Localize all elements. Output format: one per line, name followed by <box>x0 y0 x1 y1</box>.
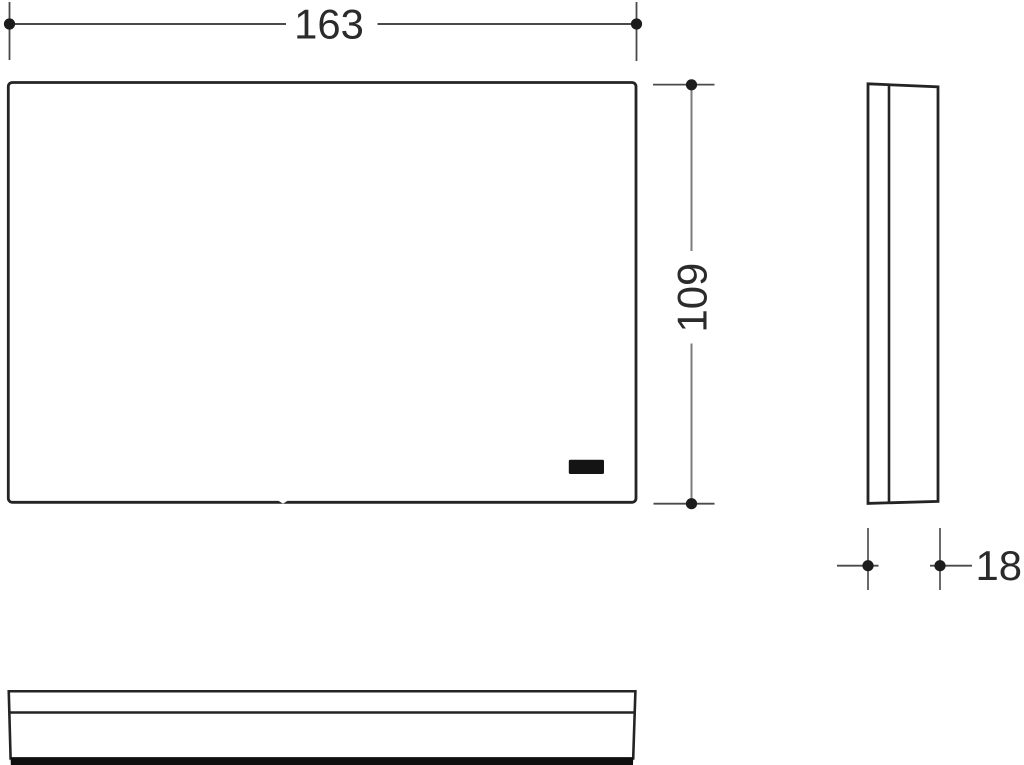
svg-text:18: 18 <box>976 542 1023 589</box>
svg-text:163: 163 <box>294 0 364 47</box>
svg-text:109: 109 <box>669 263 716 333</box>
